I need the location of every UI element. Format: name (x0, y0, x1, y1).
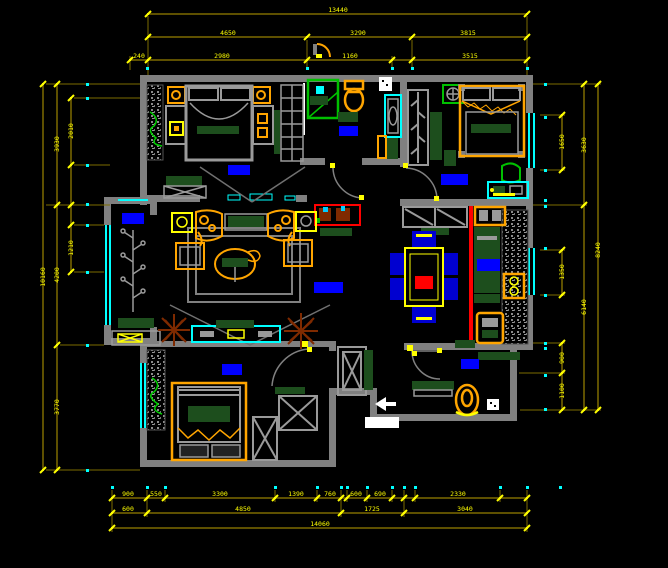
dimension-text: 2010 (67, 123, 75, 139)
new-wall-marker (469, 206, 473, 344)
dimension-text: 3770 (53, 399, 61, 415)
console-table (315, 205, 360, 236)
dimension-text: 1210 (67, 240, 75, 256)
room-label-living-room (314, 282, 343, 293)
room-label-bathroom (339, 126, 358, 136)
room-label-bedroom-top-left (228, 165, 250, 175)
dimension-text: 3515 (462, 52, 478, 60)
wardrobe-x (253, 396, 317, 460)
dimension-text: 3930 (53, 136, 61, 152)
dimension-text: 3300 (212, 490, 228, 498)
dimension-text: 3815 (460, 29, 476, 37)
stone-band (147, 85, 163, 160)
balcony-bench (118, 318, 154, 328)
bed-pillow (188, 406, 230, 422)
dining-table (405, 248, 443, 306)
entry-threshold (365, 417, 399, 428)
dimension-text: 1650 (558, 134, 566, 150)
walls (104, 75, 533, 467)
bathroom-fixtures (308, 80, 401, 159)
dimension-text: 600 (122, 505, 134, 513)
dimension-text: 13440 (328, 6, 348, 14)
doorbell-box (487, 399, 499, 410)
vanity-sink (385, 95, 401, 137)
bed-drawer (212, 445, 240, 457)
living-room-furniture (158, 205, 360, 349)
desk-chair (488, 163, 528, 198)
bedroom2-door-arc (406, 168, 437, 199)
tv (216, 320, 254, 328)
bed-drawer (180, 445, 208, 457)
dimension-text: 10160 (39, 267, 47, 287)
dimension-text: 240 (133, 52, 145, 60)
nightstand-right (253, 87, 270, 103)
sink-unit (475, 207, 505, 225)
potted-plant-right (284, 313, 318, 349)
double-bed (186, 86, 252, 160)
kitchen-furniture (469, 206, 528, 344)
dimension-text: 600 (350, 490, 362, 498)
canopy-bed (458, 84, 525, 158)
dimension-text: 1160 (342, 52, 358, 60)
sofa-set (172, 210, 316, 282)
room-label-balcony (122, 213, 144, 224)
entry-arrow (375, 397, 396, 411)
dimension-text: 690 (374, 490, 386, 498)
dimension-text: 4200 (53, 267, 61, 283)
dining-furniture (390, 207, 467, 323)
dimension-text: 8240 (594, 242, 602, 258)
room-label-bedroom-top-right (441, 174, 468, 185)
toilet (345, 81, 363, 111)
entry-bench (412, 381, 454, 390)
dimension-text: 1725 (364, 505, 380, 513)
room-label-kitchen (477, 259, 500, 271)
potted-plant-left (158, 314, 190, 346)
shoe-cabinet (478, 352, 520, 360)
dimension-text: 4650 (220, 29, 236, 37)
shower (308, 80, 338, 118)
wardrobe (281, 85, 303, 161)
fridge (477, 313, 503, 343)
bedroom-top-left-furniture (147, 85, 305, 202)
dimension-text: 6140 (580, 299, 588, 315)
door-hinges (330, 163, 439, 201)
dimension-text: 4850 (235, 505, 251, 513)
dimension-text: 760 (324, 490, 336, 498)
nightstand-left (168, 87, 185, 103)
bathroom-door-arc (333, 168, 362, 198)
dimension-text: 1100 (558, 383, 566, 399)
vase (456, 385, 478, 415)
legend-door-glyph (313, 44, 330, 58)
bed-pillow (471, 124, 511, 133)
branch-plant-icon (121, 229, 145, 312)
cad-viewport[interactable]: 1344046503290381524029801160351510160393… (0, 0, 668, 568)
shower-head (316, 86, 324, 94)
dimension-text: 900 (558, 352, 566, 364)
dimension-text: 900 (122, 490, 134, 498)
dimension-text: 14060 (310, 520, 330, 528)
corridor-cabinet (338, 347, 366, 395)
sofa-seat (228, 216, 264, 227)
dimension-text: 3630 (580, 137, 588, 153)
bedroom3-door-arc (272, 349, 308, 386)
dimension-text: 3290 (350, 29, 366, 37)
coffee-table (215, 249, 260, 282)
floorplan-drawing: 1344046503290381524029801160351510160393… (0, 0, 668, 568)
room-label-entry (461, 359, 479, 369)
shelf-column (408, 90, 428, 165)
dimension-text: 3040 (457, 505, 473, 513)
shelf (338, 112, 358, 122)
door-swing-lines (200, 167, 305, 202)
balcony (112, 229, 160, 345)
cabinet (378, 136, 386, 158)
bench (166, 176, 202, 186)
room-label-bedroom-bottom-left (222, 364, 242, 375)
dimension-text: 2330 (450, 490, 466, 498)
dimension-text: 2980 (214, 52, 230, 60)
dimension-text: 1390 (288, 490, 304, 498)
bed-pillow (197, 126, 239, 134)
dimension-text: 550 (150, 490, 162, 498)
dresser-2 (253, 106, 273, 144)
bed (172, 383, 246, 460)
window-bench (403, 207, 467, 227)
dimension-text: 1350 (558, 264, 566, 280)
